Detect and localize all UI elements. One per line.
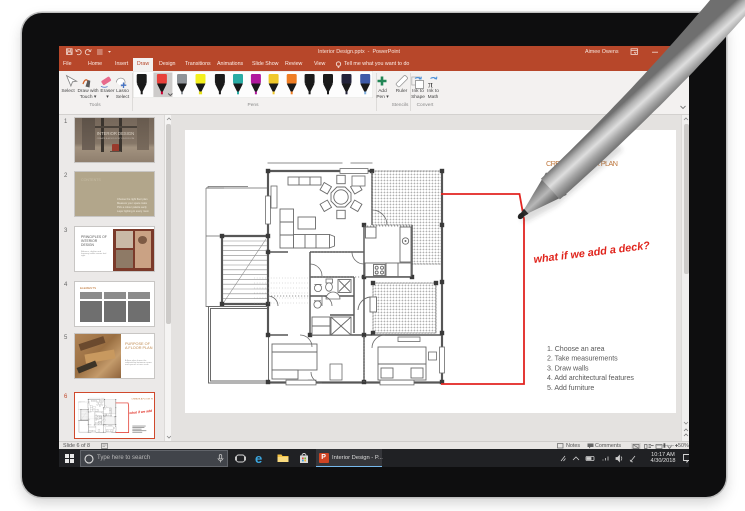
svg-text:1. Choose an area: 1. Choose an area bbox=[547, 345, 605, 353]
svg-text:what if we add a deck?: what if we add a deck? bbox=[129, 408, 153, 416]
svg-text:CREATE A FLOOR PLAN: CREATE A FLOOR PLAN bbox=[546, 159, 618, 168]
svg-text:CREATE A FLOOR PLAN: CREATE A FLOOR PLAN bbox=[131, 398, 153, 401]
svg-text:π: π bbox=[428, 80, 433, 89]
svg-text:2. Take measurements: 2. Take measurements bbox=[547, 355, 618, 363]
svg-text:4. Add architectural features: 4. Add architectural features bbox=[547, 374, 634, 382]
svg-text:3. Draw walls: 3. Draw walls bbox=[547, 364, 589, 372]
svg-text:5. Add furniture: 5. Add furniture bbox=[547, 384, 594, 392]
